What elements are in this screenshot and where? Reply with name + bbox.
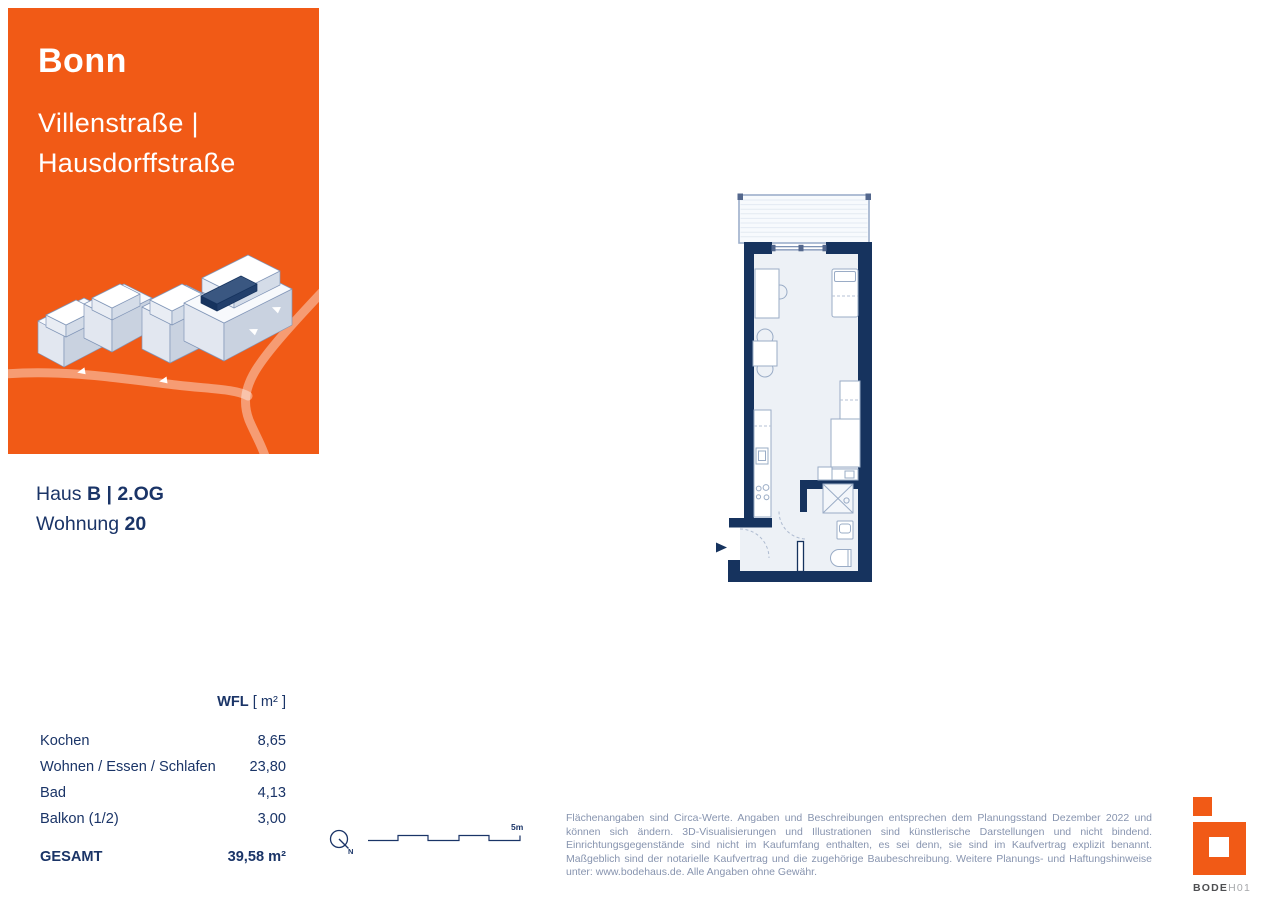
haus-label: Haus	[36, 483, 87, 505]
area-table-header: WFL [ m² ]	[40, 694, 286, 710]
table-total-row: GESAMT 39,58 m²	[40, 850, 286, 865]
dining-table	[753, 341, 777, 366]
balcony-window	[772, 245, 827, 252]
sideboard	[818, 467, 858, 480]
scale-bar	[368, 836, 520, 841]
balcony	[738, 194, 872, 244]
wohnung-label: Wohnung	[36, 513, 125, 535]
table-row: Wohnen / Essen / Schlafen 23,80	[40, 760, 286, 775]
floorplan-expose-page: Bonn Villenstraße | Hausdorffstraße Haus…	[0, 0, 1280, 905]
table-row: Kochen 8,65	[40, 734, 286, 749]
desk	[755, 269, 779, 318]
toilet	[831, 550, 852, 567]
wohnung-value: 20	[125, 513, 147, 535]
floor-plan	[710, 190, 880, 590]
street-line-2: Hausdorffstraße	[38, 143, 236, 183]
unit-heading: Haus B | 2.OG Wohnung 20	[36, 479, 164, 539]
logo-mark-big-square	[1193, 822, 1246, 875]
table-row: Bad 4,13	[40, 786, 286, 801]
wfl-unit: [ m² ]	[249, 694, 286, 710]
entry-arrow-icon	[716, 543, 727, 553]
wohnung-line: Wohnung 20	[36, 509, 164, 539]
shower	[823, 484, 853, 513]
area-table: WFL [ m² ] Kochen 8,65 Wohnen / Essen / …	[40, 694, 286, 865]
page-title-streets: Villenstraße | Hausdorffstraße	[38, 103, 236, 183]
wfl-label: WFL	[217, 694, 249, 710]
north-label: N	[348, 847, 353, 856]
logo-text: BODEH01	[1193, 882, 1251, 894]
kitchen-counter	[754, 410, 771, 517]
brand-panel: Bonn Villenstraße | Hausdorffstraße	[8, 8, 319, 454]
table-row: Balkon (1/2) 3,00	[40, 812, 286, 827]
washbasin	[837, 521, 853, 539]
wardrobe	[840, 381, 860, 420]
haus-line: Haus B | 2.OG	[36, 479, 164, 509]
page-title-city: Bonn	[38, 42, 236, 81]
north-arrow-icon	[331, 831, 349, 849]
bed	[832, 269, 858, 317]
disclaimer-text: Flächenangaben sind Circa-Werte. Angaben…	[566, 812, 1152, 880]
compass-and-scale: N 5m	[323, 810, 528, 860]
scale-label: 5m	[511, 822, 524, 832]
logo-mark-inner-square	[1209, 837, 1229, 857]
logo-mark-small-square	[1193, 797, 1212, 816]
street-line-1: Villenstraße |	[38, 103, 236, 143]
bathroom-door-leaf	[798, 542, 804, 572]
haus-value: B | 2.OG	[87, 483, 164, 505]
cabinet	[831, 419, 860, 467]
building-left	[38, 284, 152, 367]
